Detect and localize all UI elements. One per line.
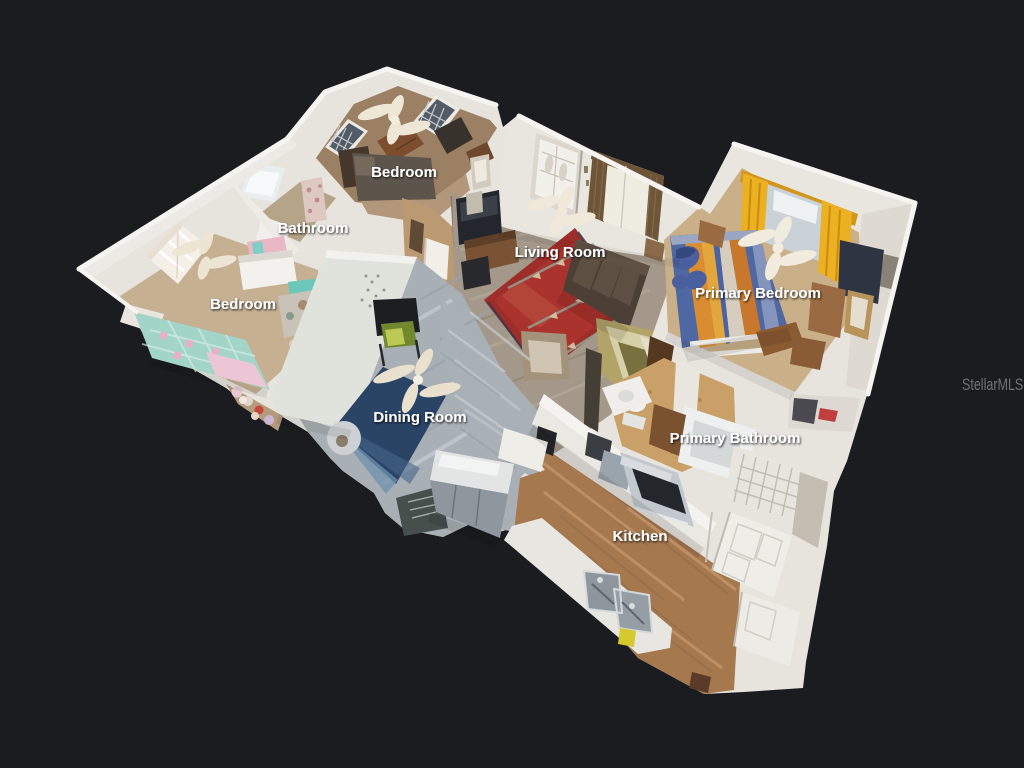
svg-text:StellarMLS: StellarMLS: [962, 376, 1023, 394]
svg-text:Bedroom: Bedroom: [210, 296, 276, 313]
svg-text:Primary Bathroom: Primary Bathroom: [670, 430, 801, 447]
svg-text:Kitchen: Kitchen: [612, 528, 667, 545]
svg-text:Bedroom: Bedroom: [371, 164, 437, 181]
svg-text:Dining Room: Dining Room: [373, 409, 466, 426]
svg-text:Bathroom: Bathroom: [278, 220, 349, 237]
svg-text:Primary Bedroom: Primary Bedroom: [695, 285, 821, 302]
svg-text:Living Room: Living Room: [515, 244, 606, 261]
